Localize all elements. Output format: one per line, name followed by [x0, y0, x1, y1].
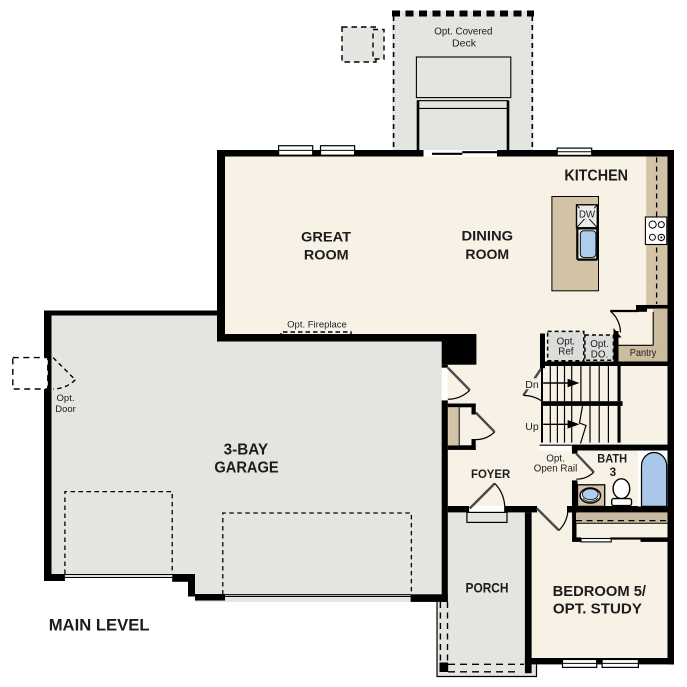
svg-text:Dn: Dn: [525, 379, 539, 391]
svg-text:Opt. Covered: Opt. Covered: [434, 26, 492, 38]
svg-text:GREAT: GREAT: [301, 229, 352, 244]
svg-text:KITCHEN: KITCHEN: [564, 167, 628, 184]
svg-text:Up: Up: [525, 421, 539, 433]
svg-text:DW: DW: [579, 209, 596, 220]
svg-text:DO.: DO.: [591, 349, 608, 360]
svg-text:PORCH: PORCH: [466, 580, 509, 596]
svg-text:Deck: Deck: [452, 38, 477, 50]
svg-text:Opt.: Opt.: [57, 393, 75, 404]
svg-text:DINING: DINING: [462, 229, 514, 244]
svg-text:ROOM: ROOM: [465, 247, 509, 262]
svg-text:MAIN LEVEL: MAIN LEVEL: [49, 616, 150, 635]
svg-text:GARAGE: GARAGE: [214, 460, 279, 477]
svg-text:Open Rail: Open Rail: [534, 463, 578, 474]
svg-text:Pantry: Pantry: [630, 348, 657, 359]
svg-text:Door: Door: [55, 404, 76, 415]
svg-text:ROOM: ROOM: [304, 247, 349, 262]
svg-text:3: 3: [610, 465, 617, 479]
svg-text:Ref: Ref: [558, 347, 574, 358]
svg-text:BEDROOM 5/: BEDROOM 5/: [553, 584, 646, 600]
svg-text:FOYER: FOYER: [471, 467, 510, 481]
svg-text:Opt. Fireplace: Opt. Fireplace: [287, 320, 347, 331]
svg-text:BATH: BATH: [597, 451, 627, 465]
svg-text:OPT. STUDY: OPT. STUDY: [553, 602, 642, 618]
svg-text:3-BAY: 3-BAY: [224, 442, 269, 459]
